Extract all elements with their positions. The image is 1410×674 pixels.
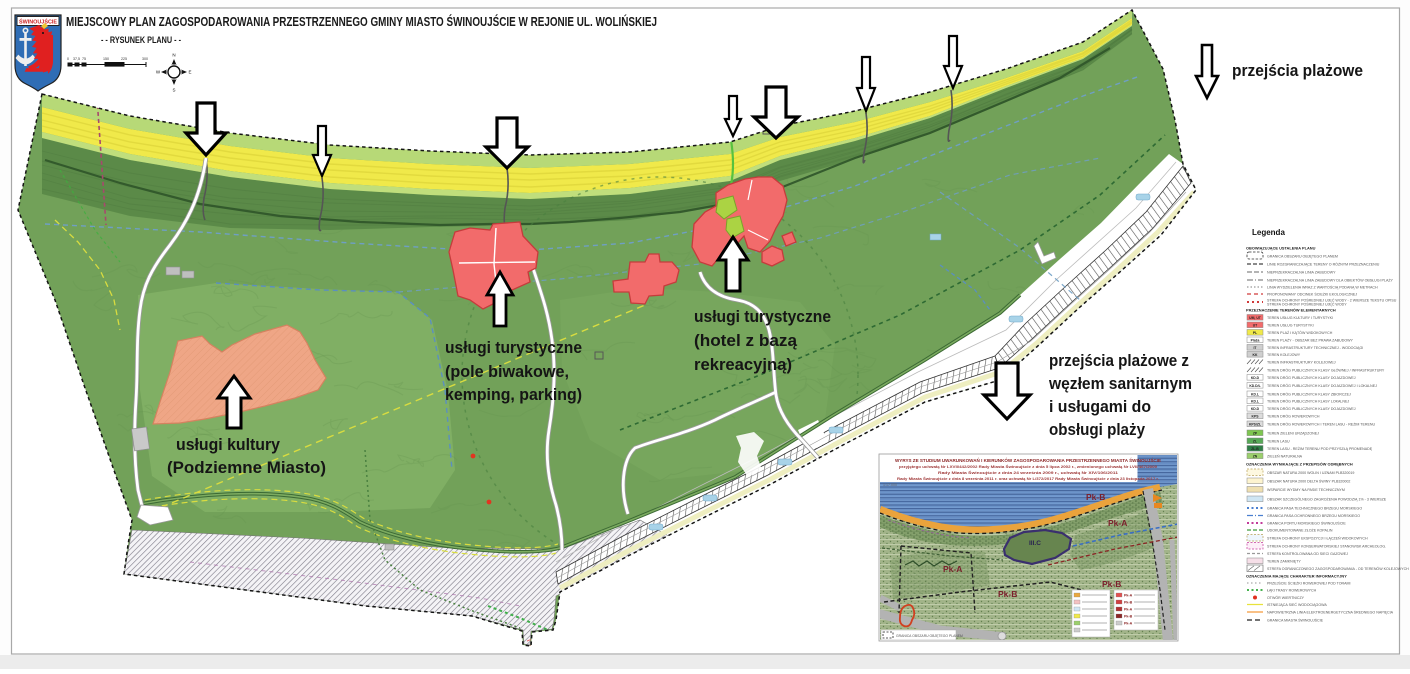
svg-text:ZN: ZN [1253, 455, 1258, 459]
svg-text:KD.D/L: KD.D/L [1249, 384, 1260, 388]
svg-text:ZP: ZP [1253, 432, 1258, 436]
svg-text:TEREN ZIELENI URZĄDZONEJ: TEREN ZIELENI URZĄDZONEJ [1267, 431, 1319, 435]
svg-text:PL: PL [1253, 331, 1257, 335]
svg-text:usługi turystyczne: usługi turystyczne [694, 308, 831, 326]
svg-text:STREFA OCHRONY EKSPOZYCJI I ŁĄ: STREFA OCHRONY EKSPOZYCJI I ŁĄCZEŃ WIDOK… [1267, 536, 1368, 540]
svg-text:- - RYSUNEK PLANU - -: - - RYSUNEK PLANU - - [101, 35, 181, 46]
svg-text:MIEJSCOWY PLAN ZAGOSPODAROWANI: MIEJSCOWY PLAN ZAGOSPODAROWANIA PRZESTRZ… [66, 14, 657, 29]
svg-text:OZNACZENIA MAJĄCE CHARAKTER IN: OZNACZENIA MAJĄCE CHARAKTER INFORMACYJNY [1246, 574, 1347, 579]
svg-text:rekreacyjną): rekreacyjną) [694, 356, 792, 374]
svg-text:Pk-A: Pk-A [1124, 593, 1133, 597]
svg-text:150: 150 [103, 57, 109, 61]
svg-text:Pk-A: Pk-A [943, 564, 962, 574]
svg-text:STREFA OCHRONY POŚREDNIEJ UJĘĆ: STREFA OCHRONY POŚREDNIEJ UJĘĆ WODY [1267, 302, 1347, 307]
svg-text:(pole biwakowe,: (pole biwakowe, [445, 363, 569, 381]
svg-text:NIEPRZEKRACZALNA LINIA ZABUDOW: NIEPRZEKRACZALNA LINIA ZABUDOWY DLA OBIE… [1267, 277, 1394, 282]
svg-text:Pk-B: Pk-B [998, 589, 1017, 599]
svg-text:III.C: III.C [1029, 540, 1041, 547]
svg-text:OZNACZENIA WYNIKAJĄCE Z PRZEPI: OZNACZENIA WYNIKAJĄCE Z PRZEPISÓW ODRĘBN… [1246, 462, 1353, 467]
svg-text:TEREN KOLEJOWY: TEREN KOLEJOWY [1267, 353, 1301, 357]
svg-text:i usługami do: i usługami do [1049, 398, 1151, 416]
svg-text:37,5: 37,5 [73, 57, 80, 61]
svg-text:KPS/ZL: KPS/ZL [1249, 423, 1261, 427]
svg-text:TEREN DRÓG PUBLICZNYCH KLASY L: TEREN DRÓG PUBLICZNYCH KLASY LOKALNEJ [1267, 398, 1349, 403]
svg-text:1:17.000: 1:17.000 [883, 483, 897, 487]
svg-text:TEREN LASU: TEREN LASU [1267, 439, 1290, 443]
svg-text:STREFA OCHRONY KONSERWATORSKIE: STREFA OCHRONY KONSERWATORSKIEJ STANOWIS… [1267, 544, 1386, 548]
svg-text:NIEPRZEKRACZALNA LINIA ZABUDOW: NIEPRZEKRACZALNA LINIA ZABUDOWY [1267, 270, 1336, 274]
svg-text:Rady Miasta Świnoujście z dnia: Rady Miasta Świnoujście z dnia 8 wrześni… [897, 476, 1159, 481]
svg-text:węzłem sanitarnym: węzłem sanitarnym [1048, 375, 1192, 393]
svg-text:TEREN INFRASTRUKTURY TECHNICZN: TEREN INFRASTRUKTURY TECHNICZNEJ - WODOC… [1267, 346, 1363, 350]
svg-text:OBSZAR SZCZEGÓLNEGO ZAGROŻENIA: OBSZAR SZCZEGÓLNEGO ZAGROŻENIA POWODZIĄ … [1267, 496, 1387, 501]
svg-text:Pk-A: Pk-A [1124, 621, 1133, 625]
svg-text:75: 75 [82, 57, 86, 61]
svg-text:300: 300 [142, 57, 148, 61]
svg-text:OBOWIĄZUJĄCE USTALENIA PLANU: OBOWIĄZUJĄCE USTALENIA PLANU [1246, 246, 1316, 251]
svg-text:STREFA OGRANICZONEGO ZAGOSPODA: STREFA OGRANICZONEGO ZAGOSPODAROWANIA - … [1267, 566, 1409, 571]
svg-text:0: 0 [67, 57, 69, 61]
svg-text:KPS: KPS [1252, 415, 1260, 419]
svg-text:TEREN DRÓG PUBLICZNYCH KLASY Z: TEREN DRÓG PUBLICZNYCH KLASY ZBIORCZEJ [1267, 391, 1351, 396]
svg-text:TEREN USŁUG TURYSTYKI: TEREN USŁUG TURYSTYKI [1267, 323, 1314, 327]
svg-text:GRANICA PORTU MORSKIEGO ŚWINOU: GRANICA PORTU MORSKIEGO ŚWINOUJŚCIE [1267, 520, 1346, 525]
svg-text:TEREN USŁUG KULTURY I TURYSTYK: TEREN USŁUG KULTURY I TURYSTYKI [1267, 316, 1333, 320]
svg-text:ŚWINOUJŚCIE: ŚWINOUJŚCIE [19, 19, 58, 26]
svg-text:usługi turystyczne: usługi turystyczne [445, 339, 582, 357]
svg-text:STREFA KONTROLOWANA OD SIECI G: STREFA KONTROLOWANA OD SIECI GAZOWEJ [1267, 552, 1348, 556]
svg-text:(Podziemne Miasto): (Podziemne Miasto) [167, 459, 326, 477]
svg-text:OTWÓR WIERTNICZY: OTWÓR WIERTNICZY [1267, 595, 1305, 600]
svg-text:KD.L: KD.L [1251, 400, 1259, 404]
svg-text:WSPARCIE WYDMY NA PASIE TECHNI: WSPARCIE WYDMY NA PASIE TECHNICZNYM [1267, 488, 1345, 492]
svg-text:GRANICA OBSZARU OBJĘTEGO PLANE: GRANICA OBSZARU OBJĘTEGO PLANEM [1267, 254, 1338, 258]
svg-text:WYRYS ZE STUDIUM UWARUNKOWAŃ I: WYRYS ZE STUDIUM UWARUNKOWAŃ I KIERUNKÓW… [895, 458, 1161, 463]
svg-text:NAPOWIETRZNA LINIA ELEKTROENER: NAPOWIETRZNA LINIA ELEKTROENERGETYCZNA Ś… [1267, 609, 1394, 614]
svg-text:Rady Miasta Świnoujście z dnia: Rady Miasta Świnoujście z dnia 24 wrześn… [938, 470, 1118, 475]
svg-text:obsługi plaży: obsługi plaży [1049, 421, 1146, 439]
svg-text:TEREN DRÓG PUBLICZNYCH KLASY D: TEREN DRÓG PUBLICZNYCH KLASY DOJAZDOWEJ [1267, 375, 1356, 380]
svg-text:KD.L: KD.L [1251, 393, 1259, 397]
svg-text:Pk-B: Pk-B [1102, 579, 1121, 589]
svg-text:225: 225 [121, 57, 127, 61]
svg-text:KK: KK [1253, 353, 1258, 357]
svg-text:PRZEJŚCIE ŚCIEŻKI ROWEROWEJ PO: PRZEJŚCIE ŚCIEŻKI ROWEROWEJ POD TORAMI [1267, 580, 1351, 585]
svg-text:Legenda: Legenda [1252, 228, 1285, 237]
svg-text:GRANICA MIASTA ŚWINOUJŚCIE: GRANICA MIASTA ŚWINOUJŚCIE [1267, 617, 1324, 622]
svg-text:TEREN DRÓG ROWEROWYCH: TEREN DRÓG ROWEROWYCH [1267, 413, 1320, 418]
svg-text:TEREN DRÓG PUBLICZNYCH KLASY D: TEREN DRÓG PUBLICZNYCH KLASY DOJAZDOWEJ … [1267, 383, 1377, 388]
svg-text:ZL.B: ZL.B [1251, 447, 1259, 451]
svg-text:Pk-B: Pk-B [1124, 614, 1133, 618]
svg-text:Pk-A: Pk-A [1124, 607, 1133, 611]
svg-text:KD.D: KD.D [1251, 407, 1260, 411]
svg-text:przyjętego uchwałą Nr LXVII/44: przyjętego uchwałą Nr LXVII/442/2002 Rad… [899, 464, 1157, 469]
svg-text:LINIA WYDZIELENIA WRAZ Z WARTO: LINIA WYDZIELENIA WRAZ Z WARTOŚCIĄ PODAN… [1267, 284, 1378, 289]
svg-text:przejścia plażowe: przejścia plażowe [1232, 62, 1363, 80]
svg-text:ZIELEŃ NATURALNA: ZIELEŃ NATURALNA [1267, 454, 1303, 458]
svg-text:GRANICA PASA OCHRONNEGO BRZEGU: GRANICA PASA OCHRONNEGO BRZEGU MORSKIEGO [1267, 514, 1360, 518]
svg-text:N: N [172, 53, 175, 58]
svg-text:PRZEZNACZENIE TERENÓW ELEMENTA: PRZEZNACZENIE TERENÓW ELEMENTARNYCH [1246, 308, 1336, 313]
svg-text:TEREN PLAŻY - OBSZAR BEZ PRAWA: TEREN PLAŻY - OBSZAR BEZ PRAWA ZABUDOWY [1267, 337, 1354, 342]
svg-text:(hotel z bazą: (hotel z bazą [694, 332, 798, 350]
svg-text:LINIE ROZGRANICZAJĄCE TERENY O: LINIE ROZGRANICZAJĄCE TERENY O RÓŻNYM PR… [1267, 261, 1380, 266]
svg-text:TEREN INFRASTRUKTURY KOLEJOWEJ: TEREN INFRASTRUKTURY KOLEJOWEJ [1267, 360, 1336, 364]
svg-text:TEREN PLAŻ I KĄTÓW WIDOKOWYCH: TEREN PLAŻ I KĄTÓW WIDOKOWYCH [1267, 330, 1333, 335]
svg-text:OBSZAR NATURA 2000 WOLIN I UZN: OBSZAR NATURA 2000 WOLIN I UZNAM PLB3200… [1267, 471, 1354, 475]
svg-text:S: S [172, 88, 175, 93]
svg-text:usługi kultury: usługi kultury [176, 436, 281, 454]
svg-text:TEREN DRÓG PUBLICZNYCH KLASY D: TEREN DRÓG PUBLICZNYCH KLASY DOJAZDOWEJ [1267, 406, 1356, 411]
svg-text:Pk-B: Pk-B [1086, 492, 1105, 502]
svg-text:GRANICA OBSZARU OBJĘTEGO PLANE: GRANICA OBSZARU OBJĘTEGO PLANEM [896, 634, 963, 638]
svg-text:OBSZAR NATURA 2000 DELTA ŚWINY: OBSZAR NATURA 2000 DELTA ŚWINY PLB320002 [1267, 478, 1350, 483]
svg-text:przejścia plażowe z: przejścia plażowe z [1049, 352, 1189, 370]
svg-text:Pk-A: Pk-A [1108, 518, 1127, 528]
svg-text:TEREN LASU - REŻIM TERENU POD: TEREN LASU - REŻIM TERENU POD PRZYSZŁĄ P… [1267, 446, 1373, 451]
svg-text:TEREN DRÓG PUBLICZNYCH KLASY G: TEREN DRÓG PUBLICZNYCH KLASY GŁÓWNEJ / I… [1267, 367, 1385, 372]
svg-text:UDOKUMENTOWANE ZŁOŻE KOPALIN: UDOKUMENTOWANE ZŁOŻE KOPALIN [1267, 527, 1333, 532]
svg-text:GRANICA PASA TECHNICZNEGO BRZE: GRANICA PASA TECHNICZNEGO BRZEGU MORSKIE… [1267, 506, 1362, 510]
svg-text:UM, UT: UM, UT [1249, 316, 1262, 320]
svg-text:ISTNIEJĄCA SIEĆ WODOCIĄGOWA: ISTNIEJĄCA SIEĆ WODOCIĄGOWA [1267, 602, 1327, 607]
svg-text:kemping, parking): kemping, parking) [445, 386, 582, 404]
svg-text:TEREN DRÓG ROWEROWYCH I TEREN: TEREN DRÓG ROWEROWYCH I TEREN LASU - REŻ… [1267, 421, 1375, 426]
svg-text:Plaża: Plaża [1251, 339, 1260, 343]
svg-text:KD.D: KD.D [1251, 376, 1260, 380]
svg-text:ZL: ZL [1253, 440, 1257, 444]
svg-text:ŁĄKI TRASY ROWEROWYCH: ŁĄKI TRASY ROWEROWYCH [1267, 588, 1317, 592]
svg-text:Pk-B: Pk-B [1124, 600, 1133, 604]
svg-text:E: E [188, 70, 191, 75]
svg-text:TEREN ZAMKNIĘTY: TEREN ZAMKNIĘTY [1267, 559, 1301, 563]
svg-text:PROPONOWANY ODCINEK ŚCIEŻKI EK: PROPONOWANY ODCINEK ŚCIEŻKI EKOLOGICZNEJ [1267, 291, 1357, 296]
